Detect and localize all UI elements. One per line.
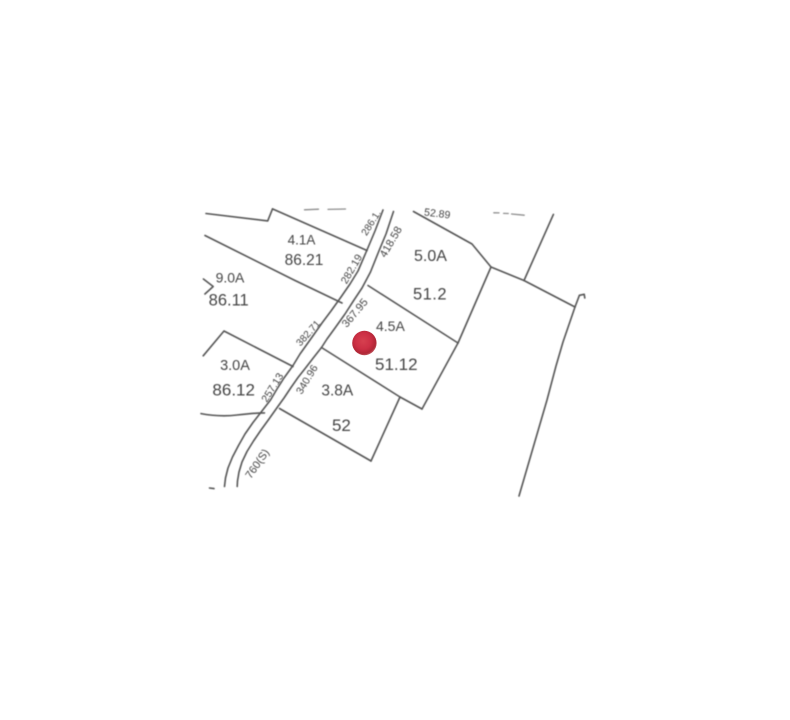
svg-text:86.11: 86.11 (209, 292, 249, 310)
svg-text:4.5A: 4.5A (376, 318, 405, 334)
svg-text:52: 52 (332, 416, 351, 435)
svg-text:86.21: 86.21 (285, 252, 324, 269)
svg-text:5.0A: 5.0A (414, 248, 447, 265)
svg-text:286.1.: 286.1. (360, 208, 384, 237)
svg-text:3.0A: 3.0A (220, 358, 250, 374)
svg-text:4.1A: 4.1A (288, 232, 316, 247)
svg-text:51.12: 51.12 (375, 355, 418, 374)
svg-text:282.19: 282.19 (339, 252, 366, 286)
svg-text:51.2: 51.2 (413, 285, 447, 303)
svg-text:340.96: 340.96 (294, 363, 321, 397)
svg-text:760(S): 760(S) (243, 447, 272, 481)
svg-text:86.12: 86.12 (212, 381, 255, 400)
svg-text:382.71: 382.71 (294, 318, 323, 348)
svg-text:3.8A: 3.8A (321, 382, 354, 399)
svg-text:9.0A: 9.0A (216, 270, 245, 286)
